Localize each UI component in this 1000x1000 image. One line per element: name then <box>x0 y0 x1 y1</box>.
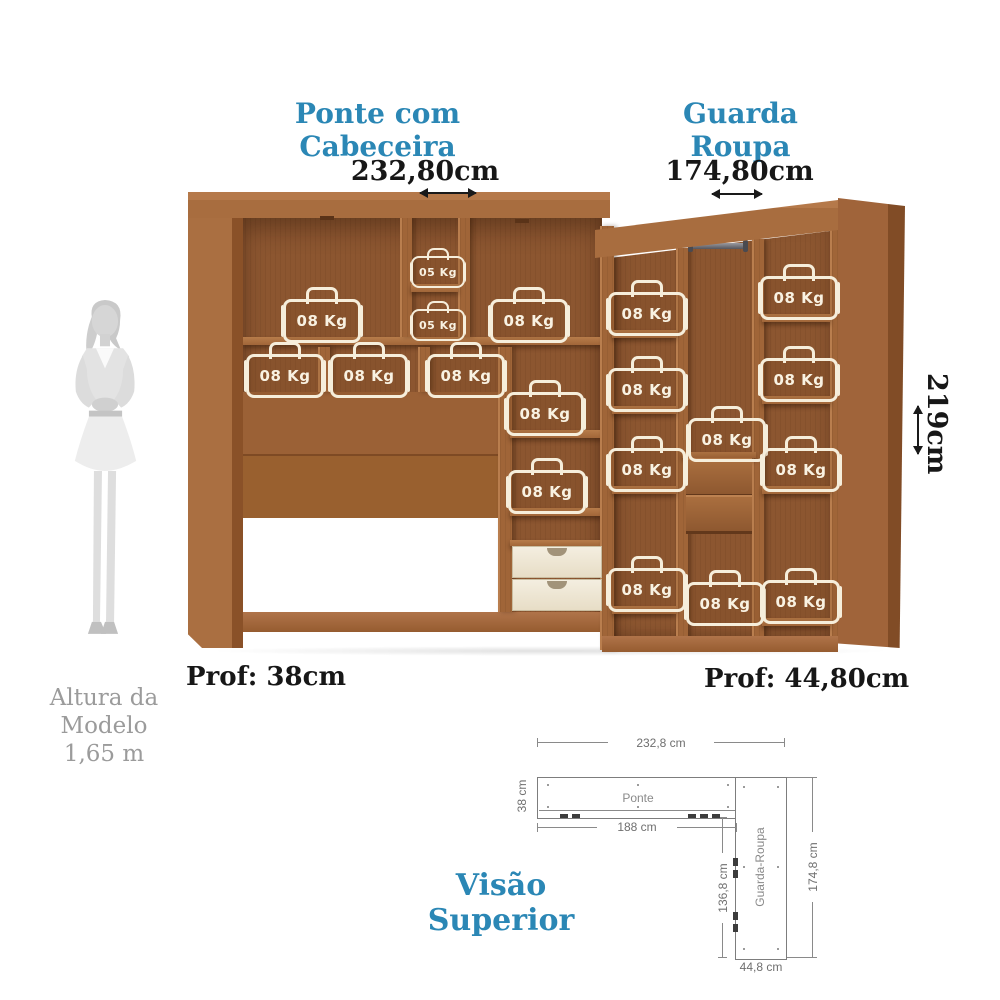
width-arrow-icon <box>420 192 476 194</box>
foot-mark <box>688 814 696 818</box>
height-dimension: 219cm <box>922 373 952 473</box>
wood-drawer <box>686 495 752 534</box>
weight-capacity-bag-icon: 08 Kg <box>330 354 408 398</box>
screw-dot <box>743 786 745 788</box>
guarda-base <box>602 636 838 652</box>
cream-drawer <box>512 546 602 578</box>
weight-capacity-bag-icon: 08 Kg <box>760 358 838 402</box>
screw-dot <box>743 948 745 950</box>
bed-opening <box>243 518 498 612</box>
weight-capacity-bag-icon: 08 Kg <box>246 354 324 398</box>
weight-capacity-bag-icon: 08 Kg <box>762 448 840 492</box>
top-view-guarda-label: Guarda-Roupa <box>753 812 767 922</box>
guarda-depth-label: Prof: 44,80cm <box>704 664 909 694</box>
hinge-mark <box>733 912 738 920</box>
ponte-bottom-rail <box>243 612 602 632</box>
hinge-mark <box>733 858 738 866</box>
weight-capacity-bag-icon: 08 Kg <box>686 582 764 626</box>
screw-dot <box>547 784 549 786</box>
weight-capacity-bag-icon: 08 Kg <box>508 470 586 514</box>
model-height-note-line: 1,65 m <box>25 740 183 768</box>
product-dimension-infographic: 05 Kg 05 Kg 08 Kg 08 Kg 08 Kg 08 Kg 08 K… <box>0 0 1000 1000</box>
model-height-note: Altura da Modelo 1,65 m <box>25 684 183 768</box>
weight-capacity-bag-icon: 08 Kg <box>760 276 838 320</box>
foot-mark <box>712 814 720 818</box>
weight-capacity-bag-icon: 08 Kg <box>608 448 686 492</box>
weight-capacity-bag-icon: 05 Kg <box>411 309 465 341</box>
dim-guarda-total-height: 174,8 cm <box>806 832 820 902</box>
ponte-headboard <box>243 392 498 518</box>
weight-capacity-bag-icon: 08 Kg <box>427 354 505 398</box>
dim-ponte-inner-width: 188 cm <box>597 820 677 834</box>
screw-dot <box>743 866 745 868</box>
ponte-width-dimension: 232,80cm <box>345 156 505 187</box>
ext-line <box>787 957 813 958</box>
weight-capacity-bag-icon: 08 Kg <box>283 299 361 343</box>
height-arrow-icon <box>917 406 919 454</box>
guarda-width-dimension: 174,80cm <box>662 156 817 187</box>
dim-guarda-depth: 44,8 cm <box>722 960 800 974</box>
screw-dot <box>637 806 639 808</box>
screw-dot <box>727 806 729 808</box>
wood-drawer <box>686 458 752 497</box>
dim-total-width: 232,8 cm <box>608 736 714 750</box>
screw-dot <box>777 866 779 868</box>
top-view-ponte-label: Ponte <box>622 791 653 805</box>
weight-capacity-bag-icon: 08 Kg <box>608 368 686 412</box>
screw-dot <box>777 948 779 950</box>
dim-ponte-depth: 38 cm <box>515 770 529 822</box>
hinge-mark <box>733 924 738 932</box>
screw-dot <box>727 784 729 786</box>
weight-capacity-bag-icon: 05 Kg <box>411 256 465 288</box>
hinge-mark <box>515 219 529 223</box>
screw-dot <box>777 786 779 788</box>
ponte-left-panel <box>188 192 243 648</box>
screw-dot <box>547 806 549 808</box>
dim-guarda-inner-height: 136,8 cm <box>716 853 730 923</box>
model-height-note-line: Modelo <box>25 712 183 740</box>
ext-line <box>787 777 813 778</box>
hinge-mark <box>320 216 334 220</box>
hinge-mark <box>733 870 738 878</box>
foot-mark <box>572 814 580 818</box>
guarda-right-panel <box>838 198 905 648</box>
top-view-title: Visão Superior <box>396 868 606 938</box>
weight-capacity-bag-icon: 08 Kg <box>490 299 568 343</box>
guarda-heading: Guarda Roupa <box>638 97 843 163</box>
foot-mark <box>700 814 708 818</box>
screw-dot <box>637 784 639 786</box>
foot-mark <box>560 814 568 818</box>
model-silhouette <box>48 298 160 650</box>
model-height-note-line: Altura da <box>25 684 183 712</box>
weight-capacity-bag-icon: 08 Kg <box>762 580 840 624</box>
ponte-depth-label: Prof: 38cm <box>186 662 346 692</box>
ponte-heading: Ponte com Cabeceira <box>225 97 530 163</box>
weight-capacity-bag-icon: 08 Kg <box>608 568 686 612</box>
width-arrow-icon <box>712 193 762 195</box>
weight-capacity-bag-icon: 08 Kg <box>506 392 584 436</box>
weight-capacity-bag-icon: 08 Kg <box>608 292 686 336</box>
inner-line <box>539 810 735 811</box>
cream-drawer <box>512 579 602 611</box>
ponte-top-panel <box>188 192 610 218</box>
weight-capacity-bag-icon: 08 Kg <box>688 418 766 462</box>
